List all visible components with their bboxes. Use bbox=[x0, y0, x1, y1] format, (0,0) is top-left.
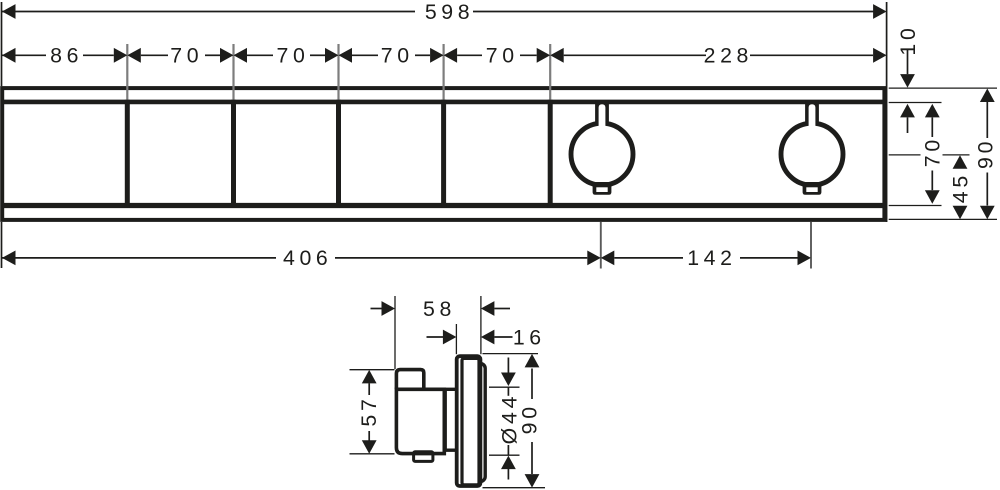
svg-text:598: 598 bbox=[425, 0, 474, 24]
svg-text:228: 228 bbox=[704, 44, 753, 68]
svg-text:90: 90 bbox=[973, 138, 997, 169]
svg-text:45: 45 bbox=[949, 172, 973, 203]
svg-text:10: 10 bbox=[896, 24, 920, 55]
svg-text:70: 70 bbox=[381, 44, 414, 68]
svg-text:70: 70 bbox=[921, 136, 945, 167]
svg-text:70: 70 bbox=[277, 44, 310, 68]
svg-text:86: 86 bbox=[50, 44, 83, 68]
svg-text:58: 58 bbox=[423, 297, 456, 321]
svg-text:16: 16 bbox=[513, 325, 546, 349]
svg-text:90: 90 bbox=[518, 403, 542, 434]
svg-text:70: 70 bbox=[170, 44, 203, 68]
svg-text:142: 142 bbox=[687, 246, 736, 270]
svg-text:57: 57 bbox=[357, 395, 381, 426]
svg-text:406: 406 bbox=[283, 246, 332, 270]
svg-text:70: 70 bbox=[486, 44, 519, 68]
